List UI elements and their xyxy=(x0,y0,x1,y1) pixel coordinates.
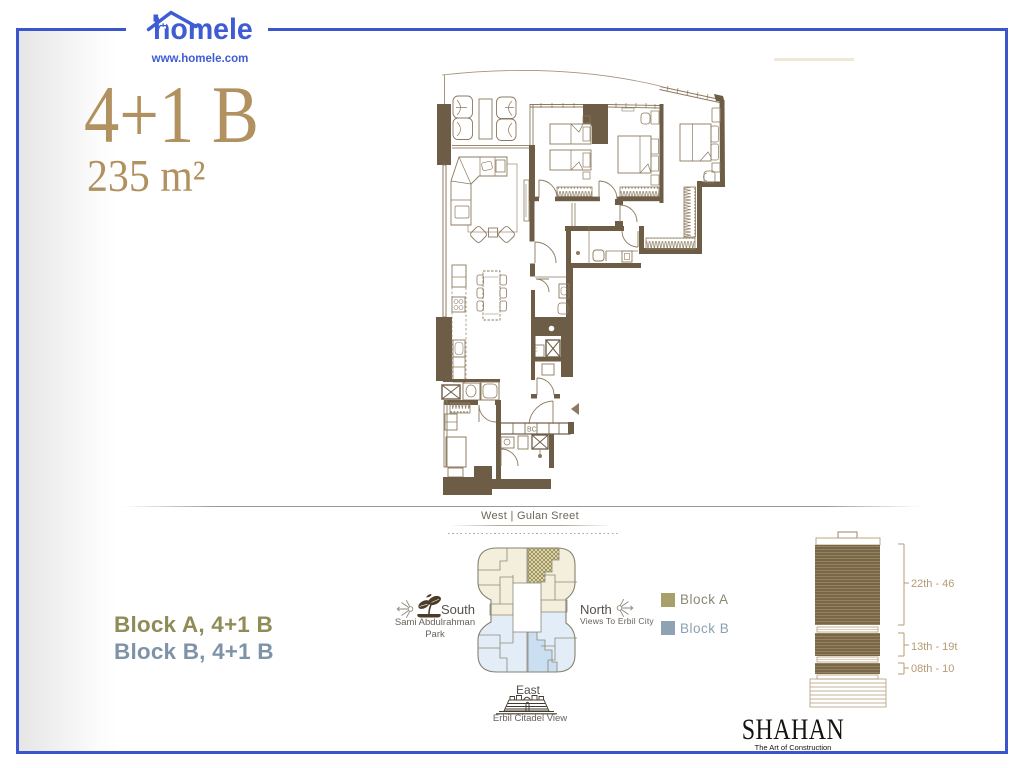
svg-text:BC: BC xyxy=(527,427,537,434)
